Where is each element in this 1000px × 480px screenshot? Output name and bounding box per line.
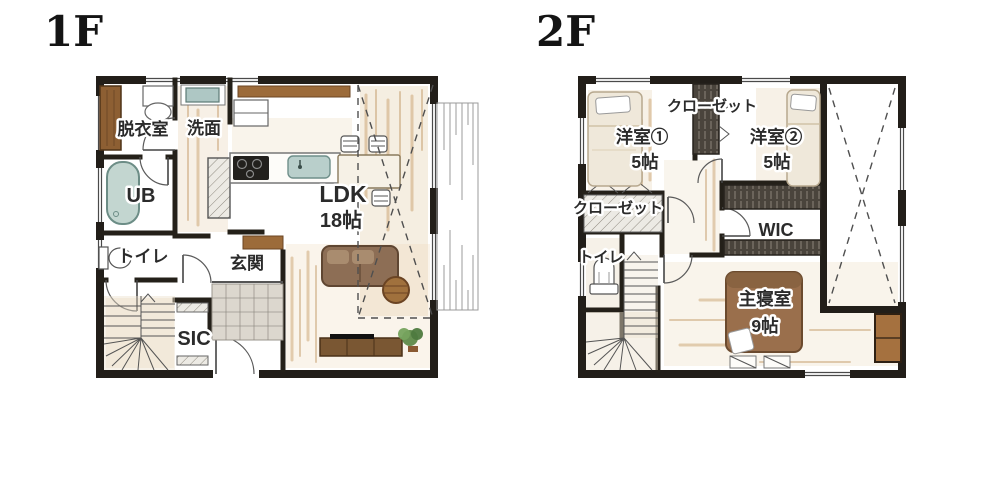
kitchen-sink	[288, 156, 330, 178]
floor-title-1f: 1F	[44, 7, 103, 56]
stairs-1f	[104, 294, 175, 370]
room-label-toilet-1f: トイレ	[118, 247, 169, 266]
floor-plan-page: 1F	[0, 0, 1000, 480]
washstand	[143, 86, 173, 121]
deck	[437, 103, 478, 310]
doorway-lintel	[243, 236, 283, 249]
floor-plan-drawing: 1F	[0, 0, 1000, 480]
corner-closet-master	[875, 314, 901, 362]
room-size-bedroom2: 5帖	[763, 152, 791, 172]
floor-1f: 1F	[44, 7, 478, 378]
room-size-master-bedroom: 9帖	[751, 316, 779, 336]
dressing-room-fixtures	[100, 86, 173, 150]
room-label-unit-bath: UB	[127, 185, 156, 207]
dining-chair	[372, 190, 390, 206]
room-label-wic: WIC	[759, 220, 794, 240]
room-label-entrance: 玄関	[230, 253, 264, 273]
round-side-table	[383, 277, 409, 303]
pantry-storage	[208, 158, 230, 218]
entrance-area	[177, 282, 283, 365]
room-label-bedroom1: 洋室①	[616, 127, 669, 147]
tv-board	[320, 334, 402, 356]
room-label-bedroom2: 洋室②	[750, 127, 803, 147]
room-label-closet-top: クローゼット	[667, 97, 757, 115]
room-label-shoe-closet: SIC	[177, 328, 210, 350]
room-label-washroom: 洗面	[187, 118, 221, 138]
room-label-dressing-room: 脱衣室	[118, 119, 169, 139]
dining-chair	[369, 136, 387, 152]
room-label-closet-side: クローゼット	[573, 199, 663, 217]
upper-cabinet	[238, 86, 350, 97]
nightstand	[764, 356, 790, 368]
tv	[330, 334, 374, 339]
dining-chair	[341, 136, 359, 152]
floor-2f: 2F	[536, 7, 906, 378]
room-size-bedroom1: 5帖	[631, 152, 659, 172]
room-size-ldk: 18帖	[320, 209, 362, 232]
floor-title-2f: 2F	[536, 7, 595, 56]
stove	[233, 156, 269, 180]
room-label-ldk: LDK	[319, 181, 367, 207]
closet-between-bedrooms	[693, 84, 729, 154]
room-label-master-bedroom: 主寝室	[739, 289, 792, 309]
room-label-toilet-2f: トイレ	[578, 249, 623, 266]
nightstand	[730, 356, 756, 368]
vanity	[181, 85, 225, 105]
